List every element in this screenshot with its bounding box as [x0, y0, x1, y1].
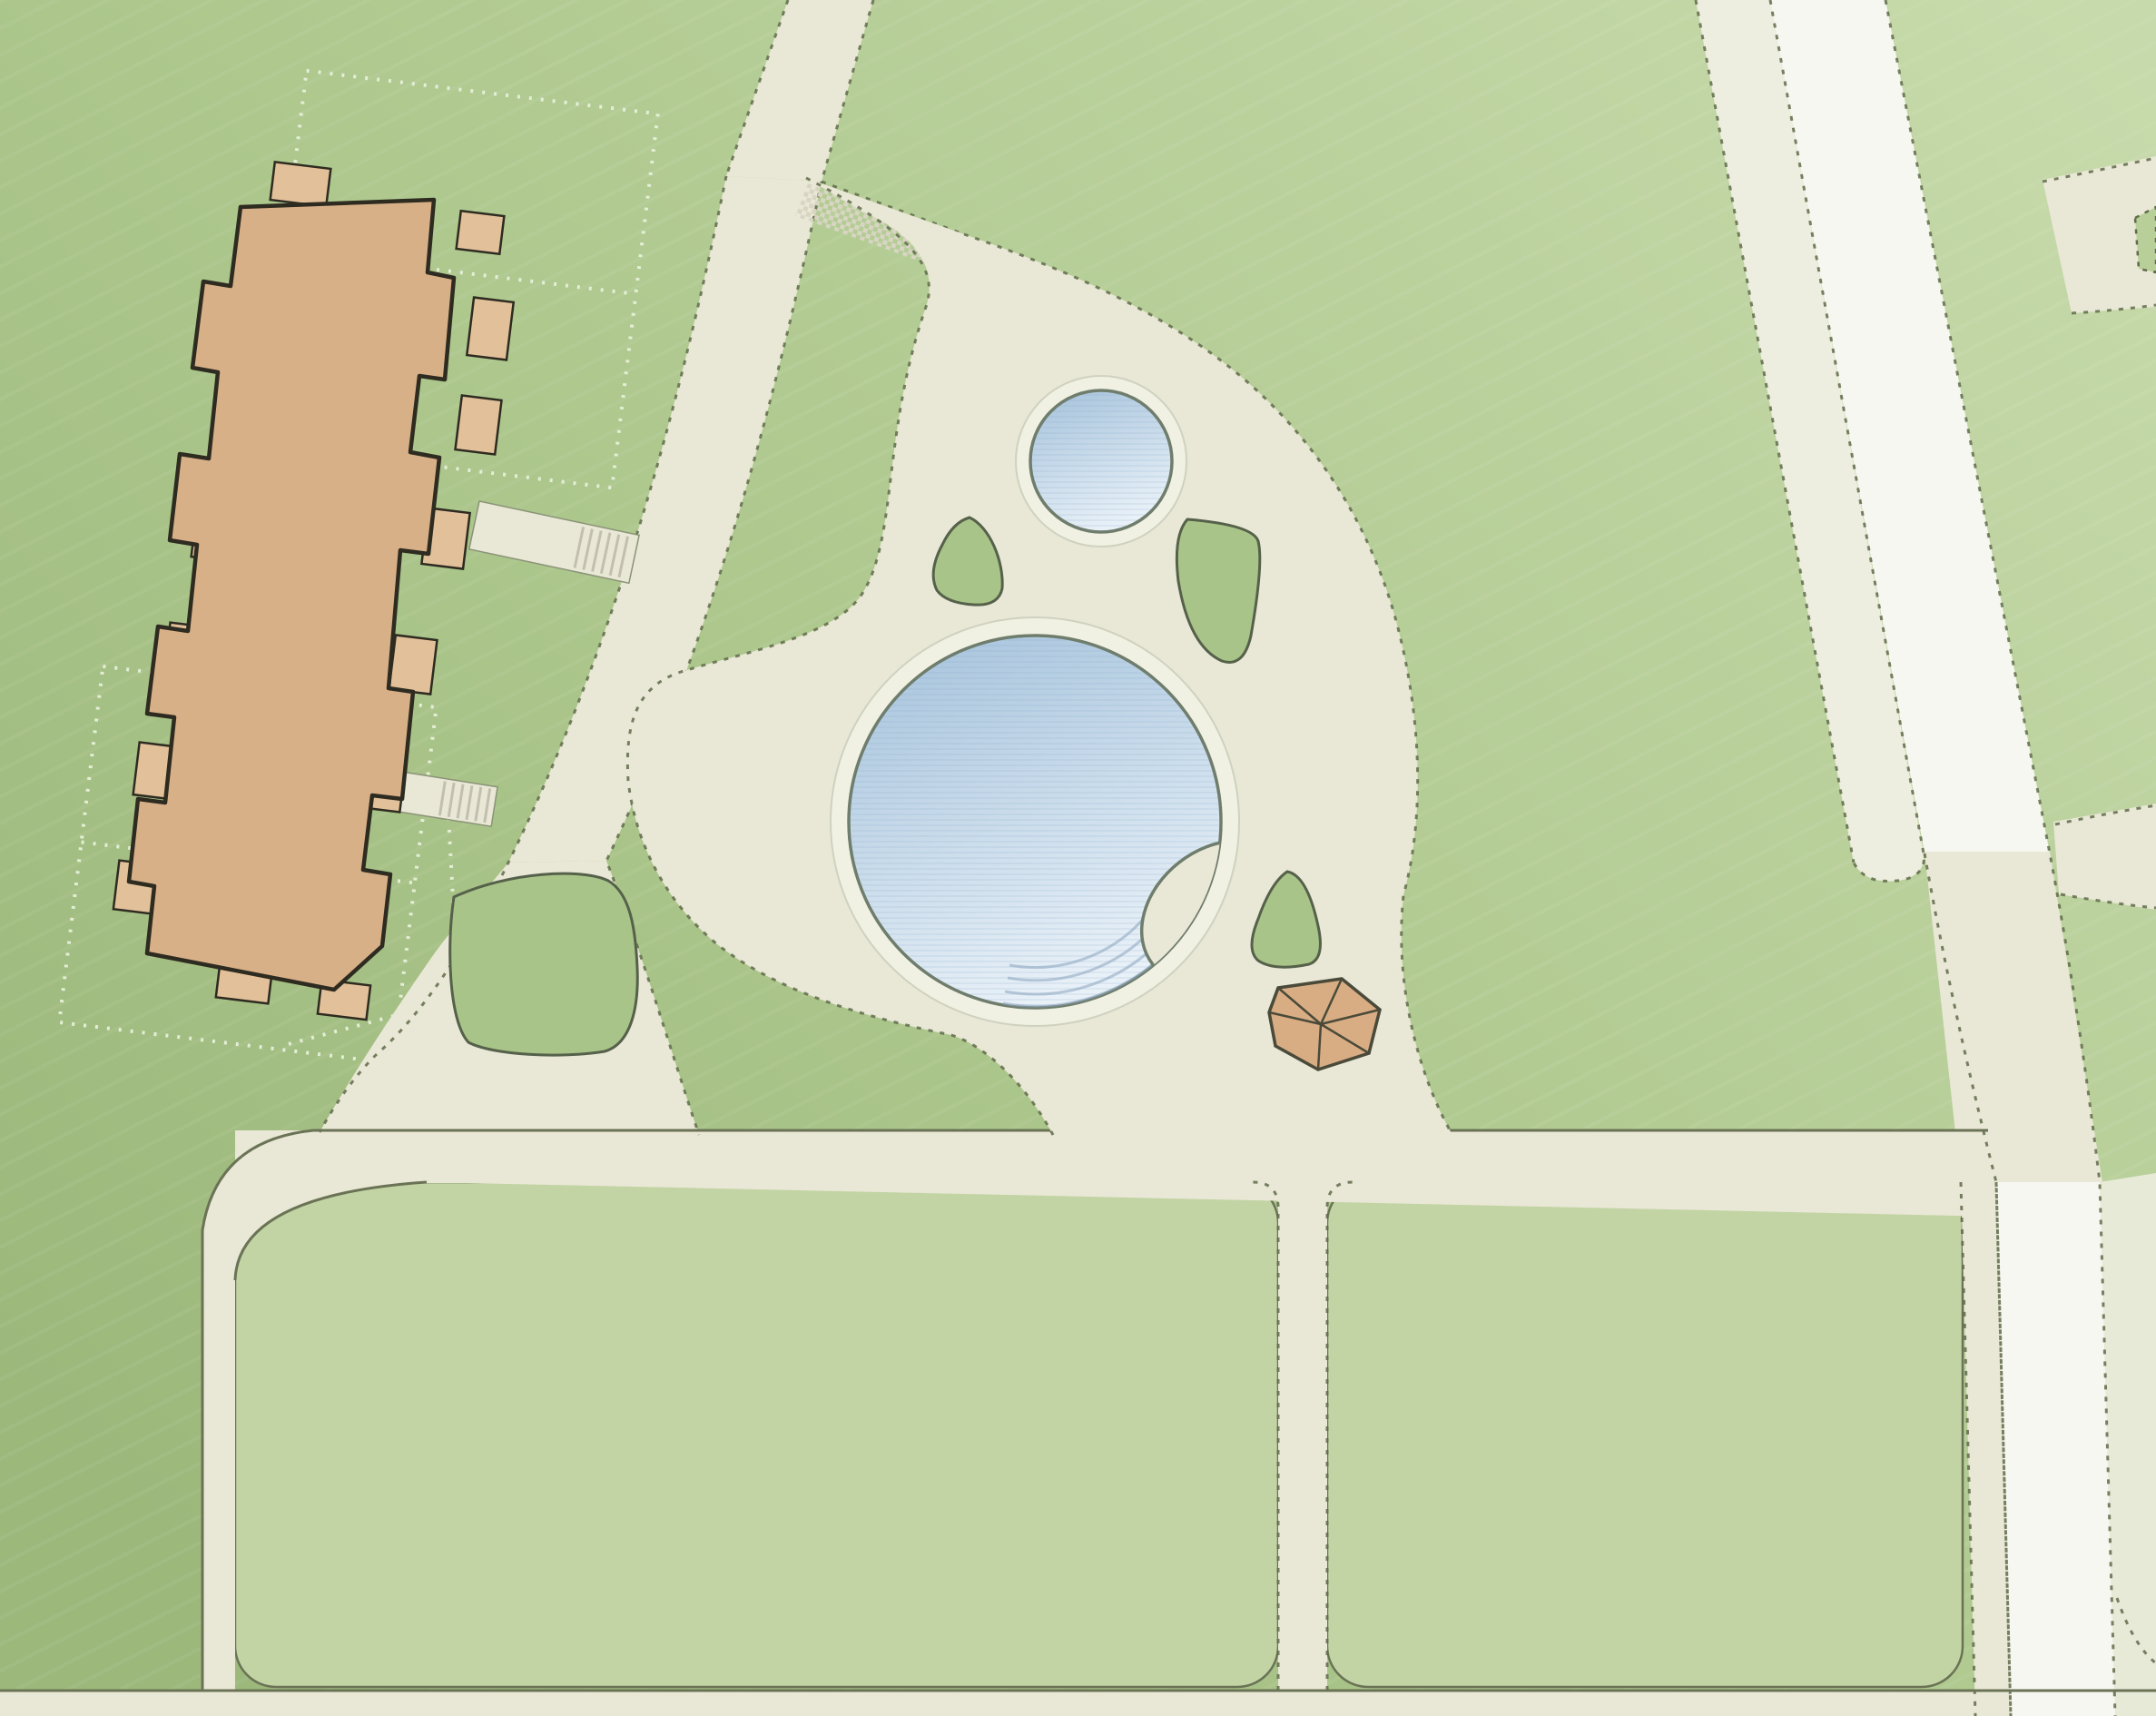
site-plan-map	[0, 0, 2156, 1716]
side-street-mid	[2053, 804, 2156, 910]
site-plan-svg	[0, 0, 2156, 1716]
main-road-lower	[1996, 1182, 2115, 1716]
fork-green-island	[450, 873, 638, 1055]
road-bottom-edge	[0, 1691, 2156, 1716]
side-street-fork-island	[2135, 207, 2156, 272]
small-pool-waves	[1032, 392, 1170, 530]
parcel-left	[235, 1182, 1278, 1687]
small-pool	[1016, 376, 1186, 547]
road-bottom-band	[235, 1130, 2009, 1183]
parcel-right	[1327, 1182, 1963, 1687]
bottom-parcels	[235, 1182, 1963, 1687]
road-parcel-gap	[1278, 1182, 1327, 1691]
